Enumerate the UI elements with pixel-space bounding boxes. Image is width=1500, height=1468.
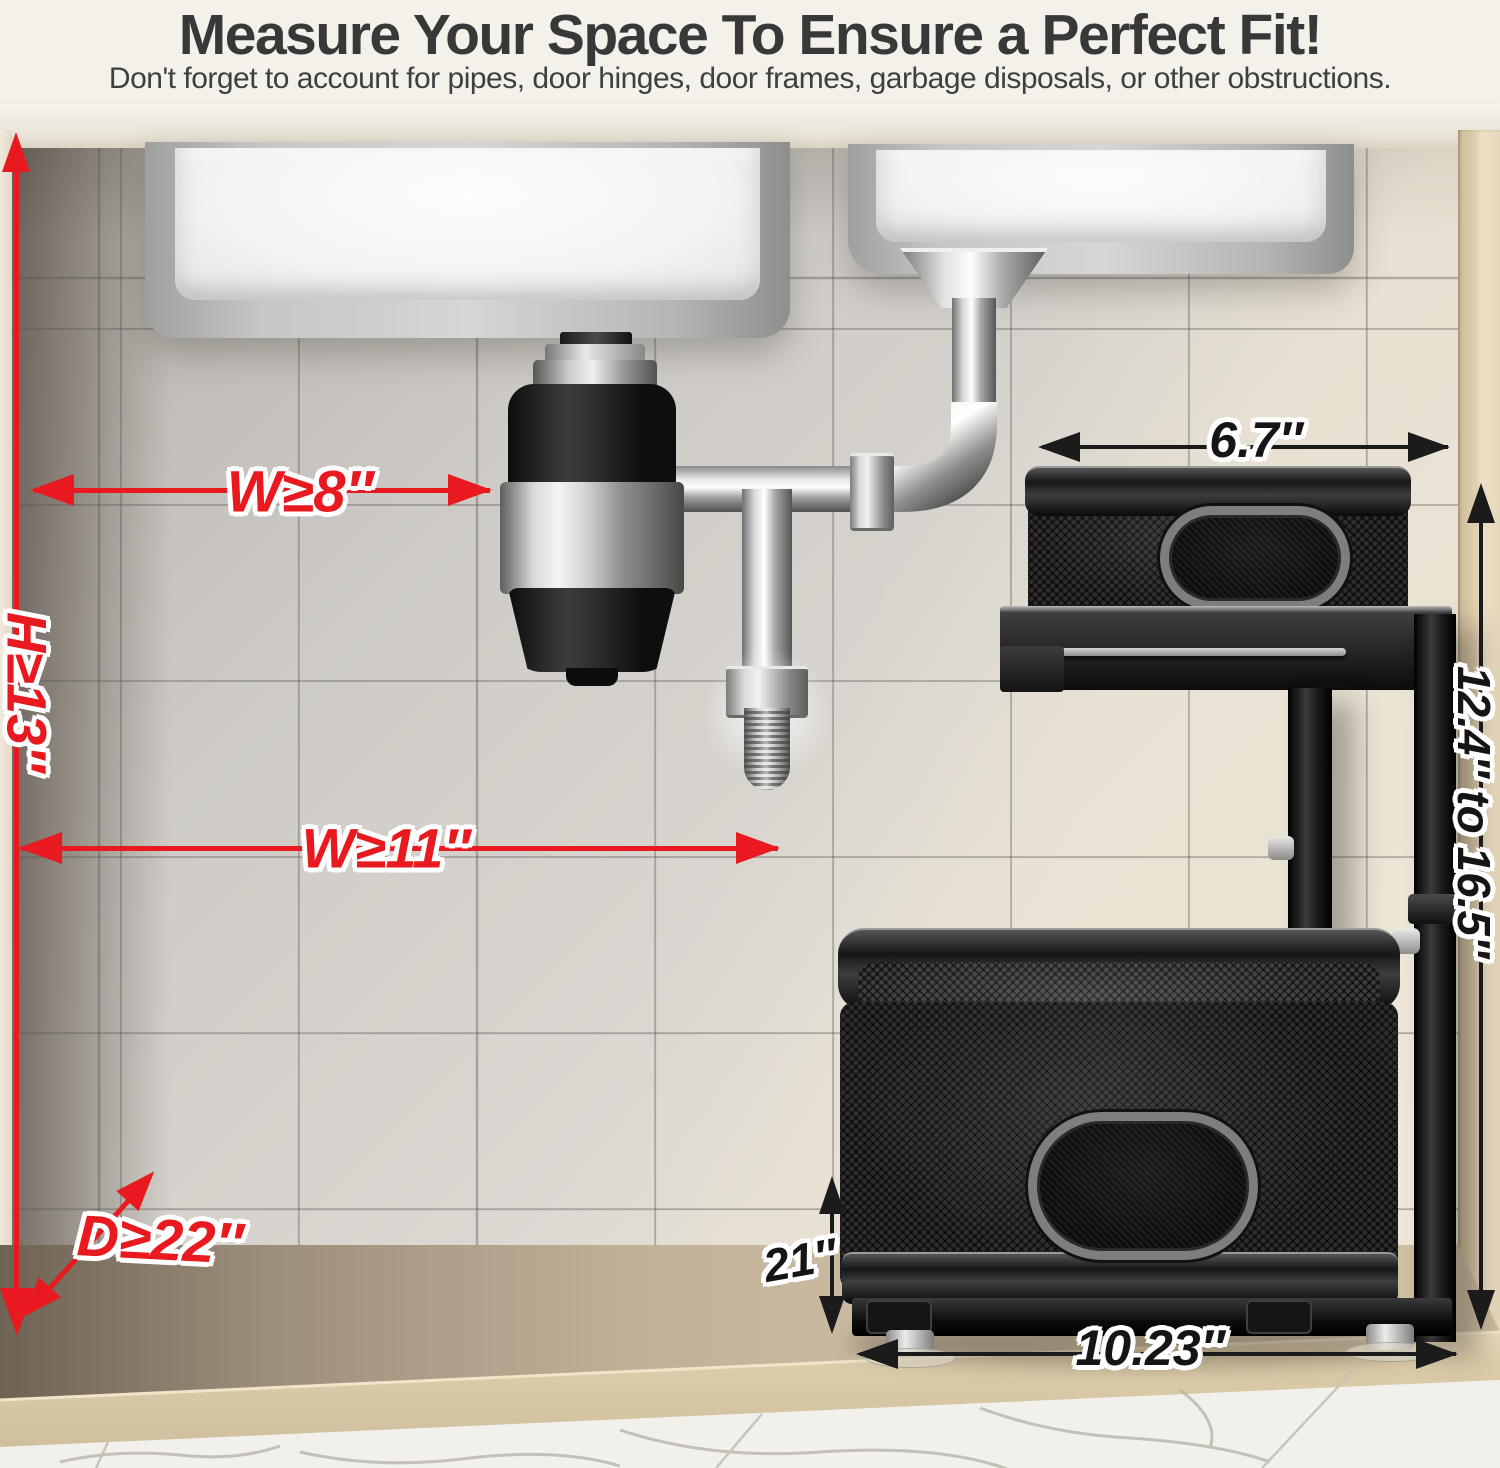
label-bottom-basket-width: 10.23″: [1075, 1319, 1224, 1377]
label-top-basket-width: 6.7″: [1209, 411, 1302, 469]
slide-wheel-right: [1246, 1300, 1312, 1334]
arrowhead-1023-left: [856, 1339, 898, 1369]
arrowhead-w8-left: [30, 474, 74, 506]
threaded-pipe-tip: [744, 708, 790, 790]
rear-post-knob: [1268, 836, 1294, 860]
garbage-disposal-bottom: [508, 588, 676, 672]
infographic-canvas: H≥13″ W≥8″ W≥11″ D≥22″ 6.7″ 12.4″ to 16.…: [0, 0, 1500, 1468]
label-adjustable-height-range: 12.4″ to 16.5″: [1447, 666, 1500, 958]
cabinet-left-frame: [0, 130, 12, 1420]
page-title: Measure Your Space To Ensure a Perfect F…: [0, 2, 1500, 68]
arrowhead-range-top: [1467, 483, 1495, 523]
garbage-disposal-band: [500, 482, 684, 594]
label-min-depth: D≥22″: [75, 1202, 244, 1278]
page-subtitle: Don't forget to account for pipes, door …: [0, 62, 1500, 96]
right-sink-interior: [876, 150, 1326, 242]
pipe-coupling-nut: [850, 453, 894, 531]
slide-wheel-left: [866, 1300, 932, 1334]
label-min-width-disposal: W≥8″: [227, 459, 374, 526]
label-min-height: H≥13″: [0, 612, 60, 772]
arrowhead-67-left: [1038, 432, 1080, 462]
arrowhead-21-top: [819, 1176, 845, 1214]
arrowhead-w11-right: [736, 832, 780, 864]
arrowhead-w8-right: [448, 474, 492, 506]
label-min-width-lower: W≥11″: [302, 816, 471, 881]
garbage-disposal-outlet-nub: [566, 668, 618, 686]
arrowhead-67-right: [1408, 432, 1450, 462]
left-sink-basin: [145, 142, 790, 338]
arrowhead-21-bottom: [819, 1296, 845, 1334]
tee-drop-pipe: [742, 489, 792, 673]
arrowhead-range-bottom: [1467, 1290, 1495, 1330]
arrowhead-1023-right: [1416, 1339, 1458, 1369]
arrowhead-height-top: [2, 132, 30, 172]
top-shelf-rail-end-cap: [1000, 646, 1064, 692]
left-sink-interior: [175, 148, 760, 300]
top-shelf-slide-rail: [1016, 648, 1346, 656]
top-basket-handle: [1160, 506, 1350, 610]
arrowhead-w11-left: [18, 832, 62, 864]
bottom-basket-handle: [1028, 1112, 1258, 1260]
garbage-disposal-top: [508, 384, 676, 490]
